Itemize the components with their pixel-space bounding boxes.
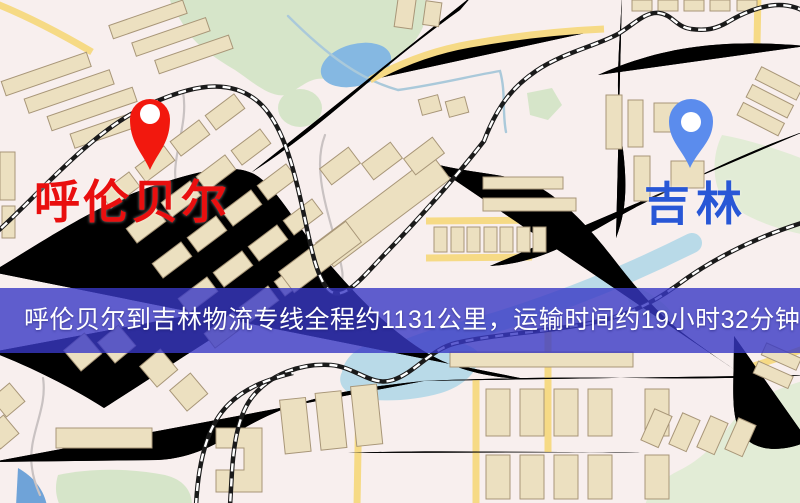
origin-pin-hole (140, 104, 160, 124)
origin-label: 呼伦贝尔 (34, 179, 230, 225)
destination-pin-hole (681, 112, 701, 132)
route-info-text: 呼伦贝尔到吉林物流专线全程约1131公里，运输时间约19小时32分钟. (24, 306, 800, 334)
map-canvas: 呼伦贝尔 吉林 呼伦贝尔到吉林物流专线全程约1131公里，运输时间约19小时32… (0, 0, 800, 503)
route-info-banner: 呼伦贝尔到吉林物流专线全程约1131公里，运输时间约19小时32分钟. (0, 288, 800, 353)
map-surface[interactable] (0, 0, 800, 503)
destination-label: 吉林 (644, 181, 748, 227)
